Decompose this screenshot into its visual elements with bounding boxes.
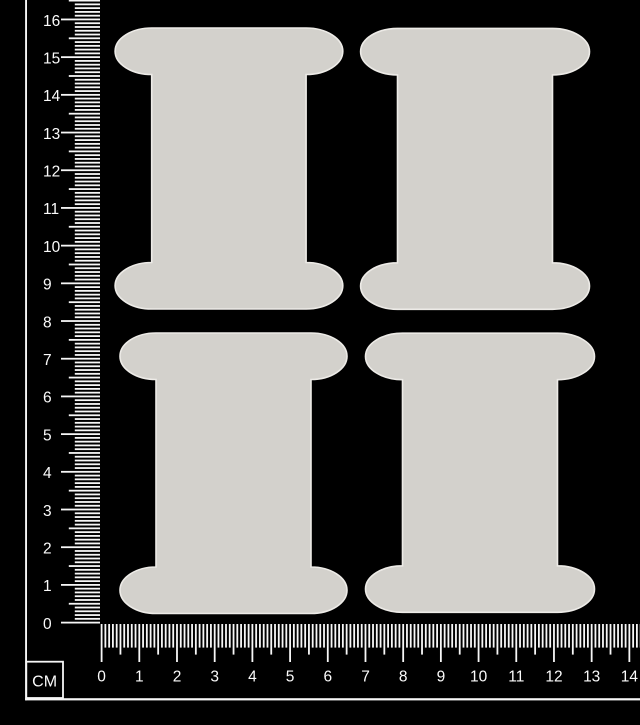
svg-text:3: 3 xyxy=(210,669,219,686)
svg-text:12: 12 xyxy=(545,669,562,686)
svg-text:0: 0 xyxy=(43,616,52,633)
svg-text:1: 1 xyxy=(43,578,52,595)
svg-text:13: 13 xyxy=(43,126,60,143)
svg-text:4: 4 xyxy=(248,669,257,686)
svg-text:10: 10 xyxy=(43,239,61,256)
svg-text:4: 4 xyxy=(43,465,52,482)
svg-text:0: 0 xyxy=(97,669,106,686)
svg-text:3: 3 xyxy=(43,503,52,520)
svg-text:16: 16 xyxy=(43,13,60,30)
svg-text:14: 14 xyxy=(43,88,61,105)
svg-text:5: 5 xyxy=(286,669,295,686)
svg-text:8: 8 xyxy=(399,669,408,686)
svg-text:15: 15 xyxy=(43,50,60,67)
svg-text:9: 9 xyxy=(43,277,52,294)
svg-text:7: 7 xyxy=(43,352,52,369)
svg-text:11: 11 xyxy=(508,669,524,686)
svg-text:7: 7 xyxy=(361,669,370,686)
svg-text:10: 10 xyxy=(470,669,488,686)
svg-text:CM: CM xyxy=(32,674,57,691)
svg-text:1: 1 xyxy=(135,669,144,686)
svg-text:2: 2 xyxy=(43,541,52,558)
svg-text:12: 12 xyxy=(43,164,60,181)
svg-text:8: 8 xyxy=(43,314,52,331)
svg-text:13: 13 xyxy=(583,669,600,686)
svg-text:11: 11 xyxy=(43,201,59,218)
svg-text:6: 6 xyxy=(323,669,332,686)
svg-text:5: 5 xyxy=(43,427,52,444)
svg-text:6: 6 xyxy=(43,390,52,407)
svg-text:14: 14 xyxy=(621,669,639,686)
svg-text:9: 9 xyxy=(437,669,446,686)
svg-text:2: 2 xyxy=(173,669,182,686)
